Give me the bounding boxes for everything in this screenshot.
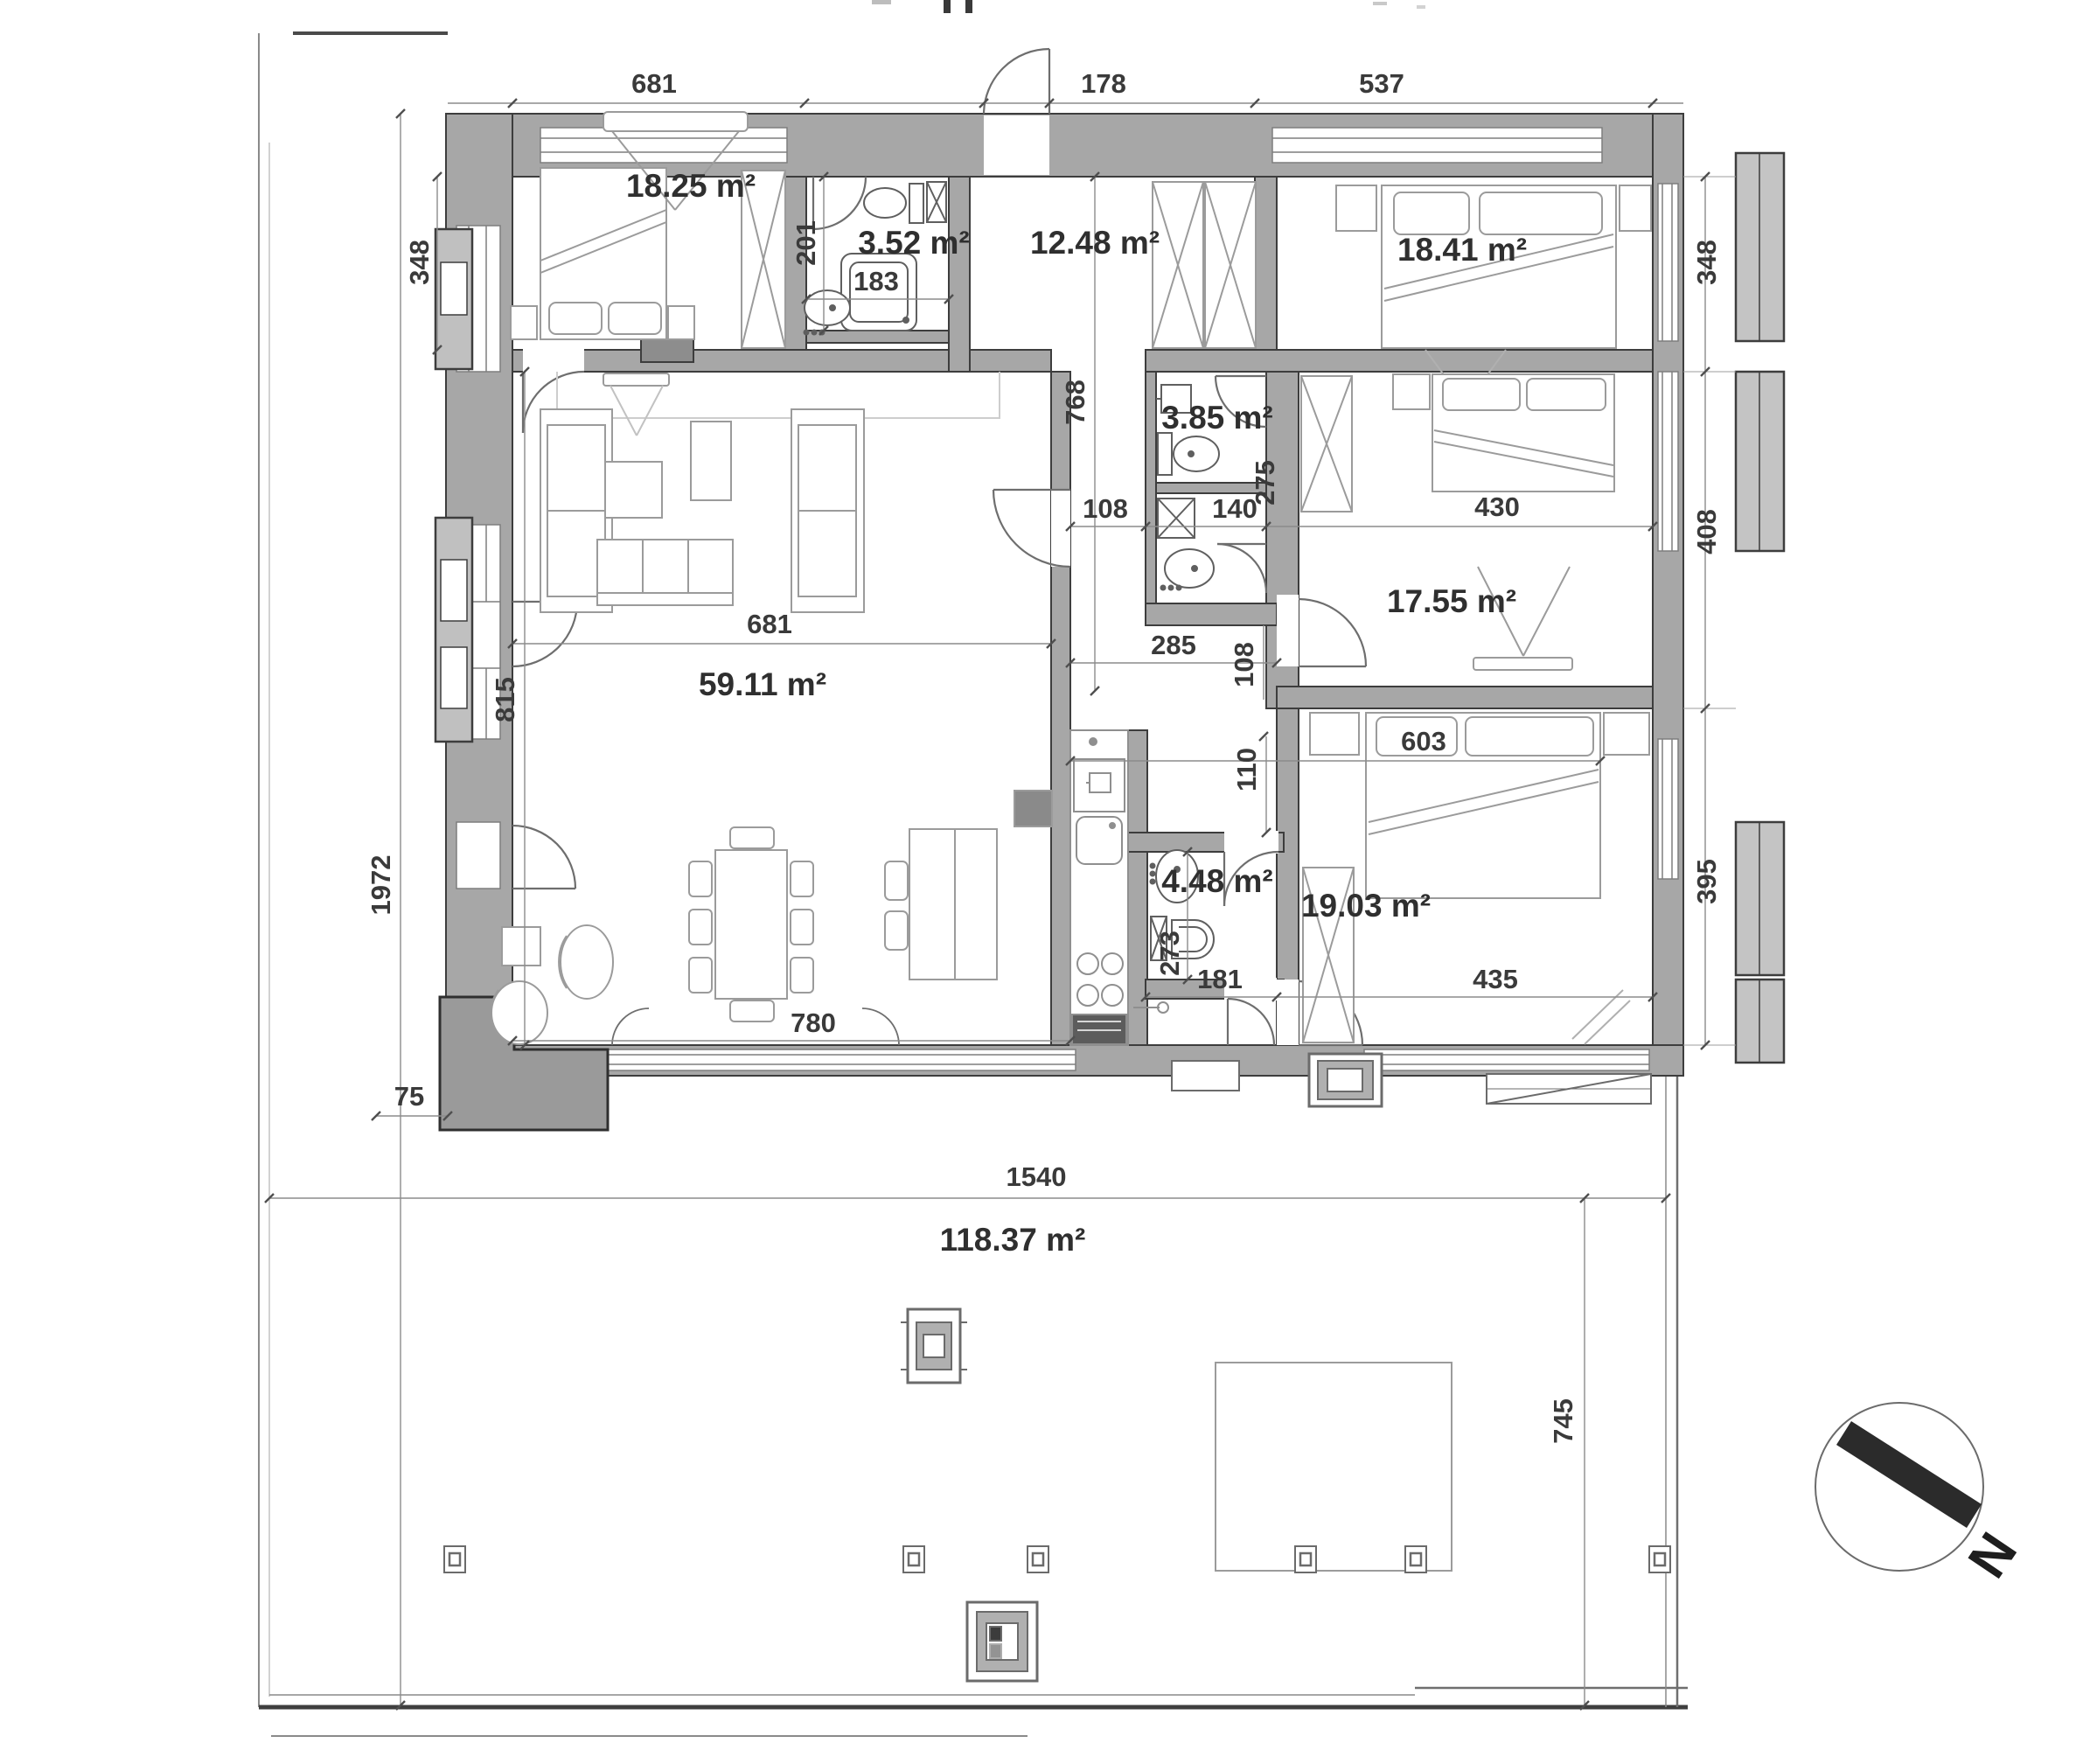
- dim-corridor-108b: 108: [1229, 642, 1259, 687]
- dim-right-395: 395: [1691, 859, 1722, 904]
- dim-bath-mid-140: 140: [1212, 493, 1257, 524]
- dining-table-set: [689, 827, 813, 1021]
- dim-top-681: 681: [631, 68, 677, 99]
- dim-top-178: 178: [1081, 68, 1126, 99]
- cropped-title-fragment: [872, 0, 1425, 13]
- dim-terrace-1540: 1540: [1007, 1161, 1067, 1192]
- dim-top-537: 537: [1359, 68, 1404, 99]
- area-bedroom-bottom-right: 19.03 m²: [1301, 888, 1431, 924]
- exterior-window-sill: [1487, 1074, 1651, 1104]
- dim-living-780: 780: [791, 1008, 836, 1038]
- dim-total-1972: 1972: [366, 855, 396, 916]
- area-bathroom-lower: 4.48 m²: [1161, 863, 1273, 899]
- area-bedroom-middle-right: 17.55 m²: [1387, 583, 1516, 619]
- floor-plan-page: 681 178 537 348 348 201 183 768 275 140 …: [0, 0, 2076, 1764]
- lounge-chairs: [491, 925, 613, 1044]
- area-bedroom-top-left: 18.25 m²: [626, 168, 756, 204]
- dim-living-681: 681: [747, 609, 792, 639]
- area-terrace: 118.37 m²: [940, 1222, 1086, 1258]
- dim-bath-top-201: 201: [791, 220, 821, 266]
- dim-left-348: 348: [404, 240, 435, 285]
- terrace-drain-lower: [967, 1602, 1037, 1681]
- floor-plan-drawing: 681 178 537 348 348 201 183 768 275 140 …: [0, 0, 2076, 1764]
- dim-hall-181: 181: [1197, 964, 1243, 994]
- dim-junction-110: 110: [1231, 748, 1262, 791]
- dim-right-348: 348: [1691, 240, 1722, 285]
- area-hallway: 12.48 m²: [1030, 225, 1160, 261]
- dim-corridor-108: 108: [1083, 493, 1128, 524]
- area-bedroom-top-right: 18.41 m²: [1397, 232, 1527, 268]
- dim-bed4-603: 603: [1401, 726, 1446, 756]
- dim-living-815: 815: [490, 677, 520, 722]
- area-living-kitchen: 59.11 m²: [699, 666, 826, 702]
- terrace-objects: [444, 1054, 1670, 1681]
- terrace-fixings: [444, 1546, 1670, 1572]
- right-facade-shutters: [1683, 153, 1784, 1063]
- bedroom-middle-right-furniture: [1301, 374, 1614, 670]
- terrace-table: [1216, 1363, 1452, 1571]
- area-bathroom-top: 3.52 m²: [858, 225, 970, 261]
- kitchen-island: [885, 829, 997, 980]
- terrace-drain-upper: [901, 1309, 967, 1383]
- dim-hall-285: 285: [1151, 630, 1196, 660]
- dim-bath-low-273: 273: [1154, 931, 1185, 976]
- wall-vent: [1309, 1054, 1382, 1106]
- dim-bed3-430: 430: [1474, 492, 1520, 522]
- dim-bath-top-183: 183: [853, 266, 899, 296]
- north-label: N: [1957, 1523, 2029, 1589]
- area-bathroom-middle: 3.85 m²: [1161, 400, 1273, 436]
- dim-hall-768: 768: [1060, 380, 1090, 425]
- north-arrow-icon: N: [1815, 1403, 2029, 1588]
- dim-right-408: 408: [1691, 509, 1722, 554]
- hallway-wardrobes: [1153, 182, 1256, 348]
- dim-terrace-745: 745: [1548, 1398, 1578, 1444]
- living-room-furniture: [540, 372, 1052, 826]
- dim-bed4-435: 435: [1473, 964, 1518, 994]
- dim-strip-75: 75: [394, 1081, 424, 1112]
